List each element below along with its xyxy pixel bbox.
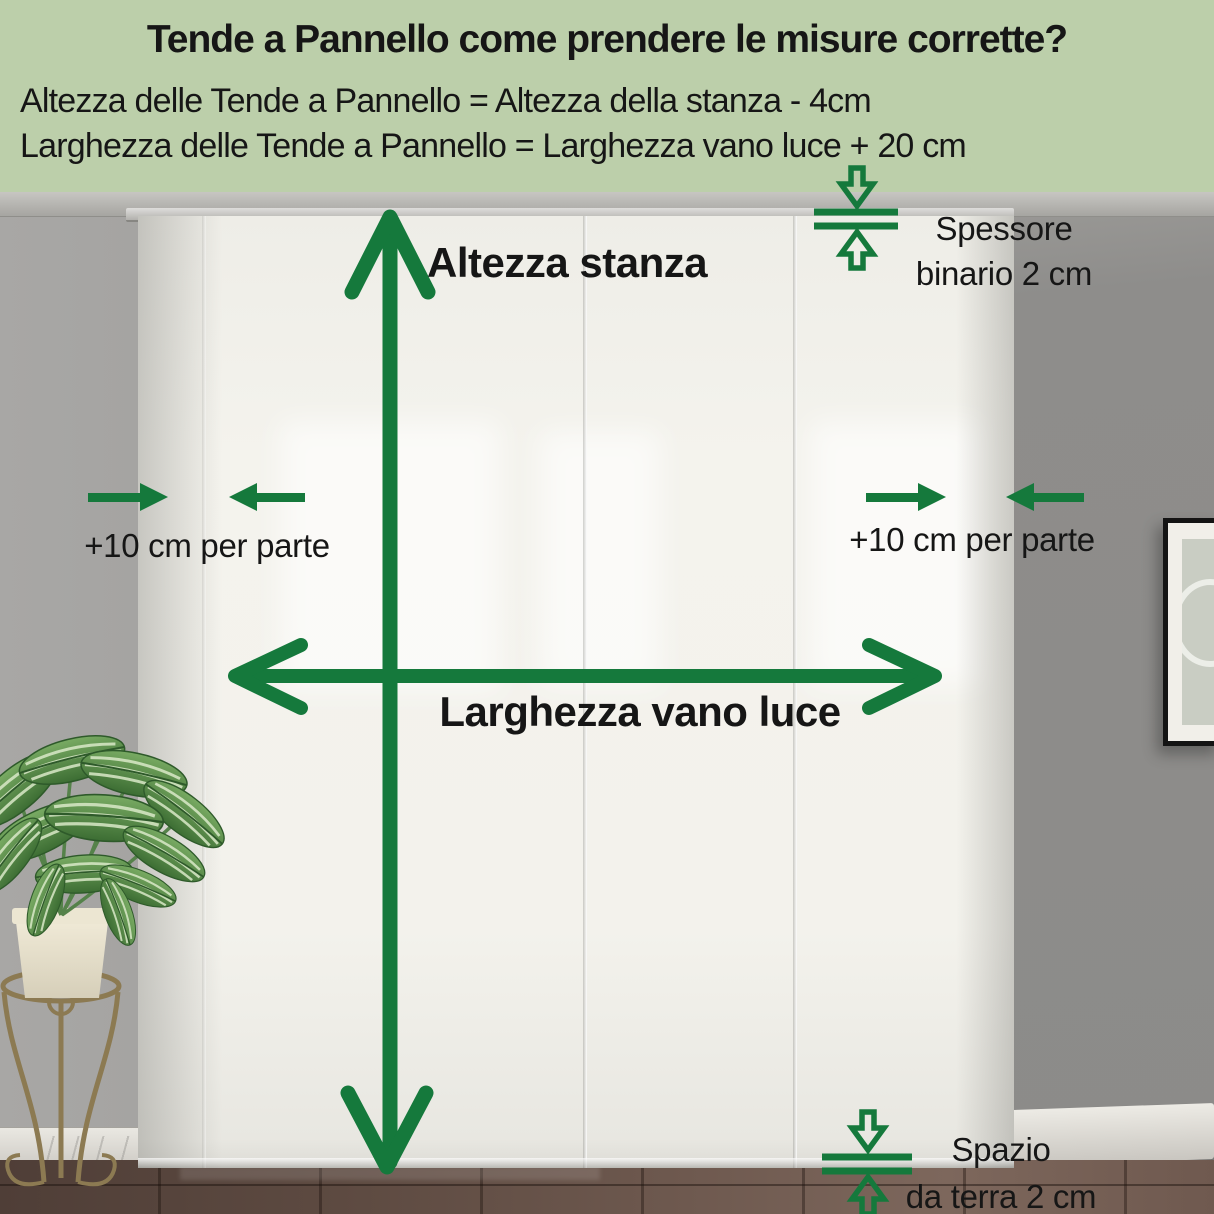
plant-leaves: [0, 730, 234, 950]
panel-curtain-measure-infographic: Tende a Pannello come prendere le misure…: [0, 0, 1214, 1214]
opening-width-label: Larghezza vano luce: [439, 688, 840, 736]
side-margin-label-right: +10 cm per parte: [849, 521, 1095, 559]
rail-thickness-label: Spessore binario 2 cm: [916, 206, 1092, 296]
rail-thickness-label-line1: Spessore: [916, 206, 1092, 251]
header-band: Tende a Pannello come prendere le misure…: [0, 0, 1214, 192]
potted-plant: [0, 730, 252, 1214]
floor-gap-label-line2: da terra 2 cm: [906, 1173, 1097, 1214]
picture-art: [1182, 539, 1214, 725]
curtain-hem: [138, 1158, 1014, 1168]
light-reflection: [540, 431, 660, 686]
height-formula: Altezza delle Tende a Pannello = Altezza…: [20, 82, 871, 121]
room-height-label: Altezza stanza: [427, 239, 707, 287]
art-circle-motif: [1182, 579, 1214, 667]
side-margin-label-left: +10 cm per parte: [84, 527, 330, 565]
curtain-right-shade: [956, 216, 1014, 1168]
plant-stand: [3, 971, 119, 1184]
floor-gap-label-line1: Spazio: [906, 1126, 1097, 1173]
rail-thickness-label-line2: binario 2 cm: [916, 251, 1092, 296]
width-formula: Larghezza delle Tende a Pannello = Largh…: [20, 127, 966, 166]
picture-frame: [1163, 518, 1214, 746]
picture-mat: [1168, 523, 1214, 741]
floor-gap-label: Spazio da terra 2 cm: [906, 1126, 1097, 1214]
page-title: Tende a Pannello come prendere le misure…: [0, 18, 1214, 62]
